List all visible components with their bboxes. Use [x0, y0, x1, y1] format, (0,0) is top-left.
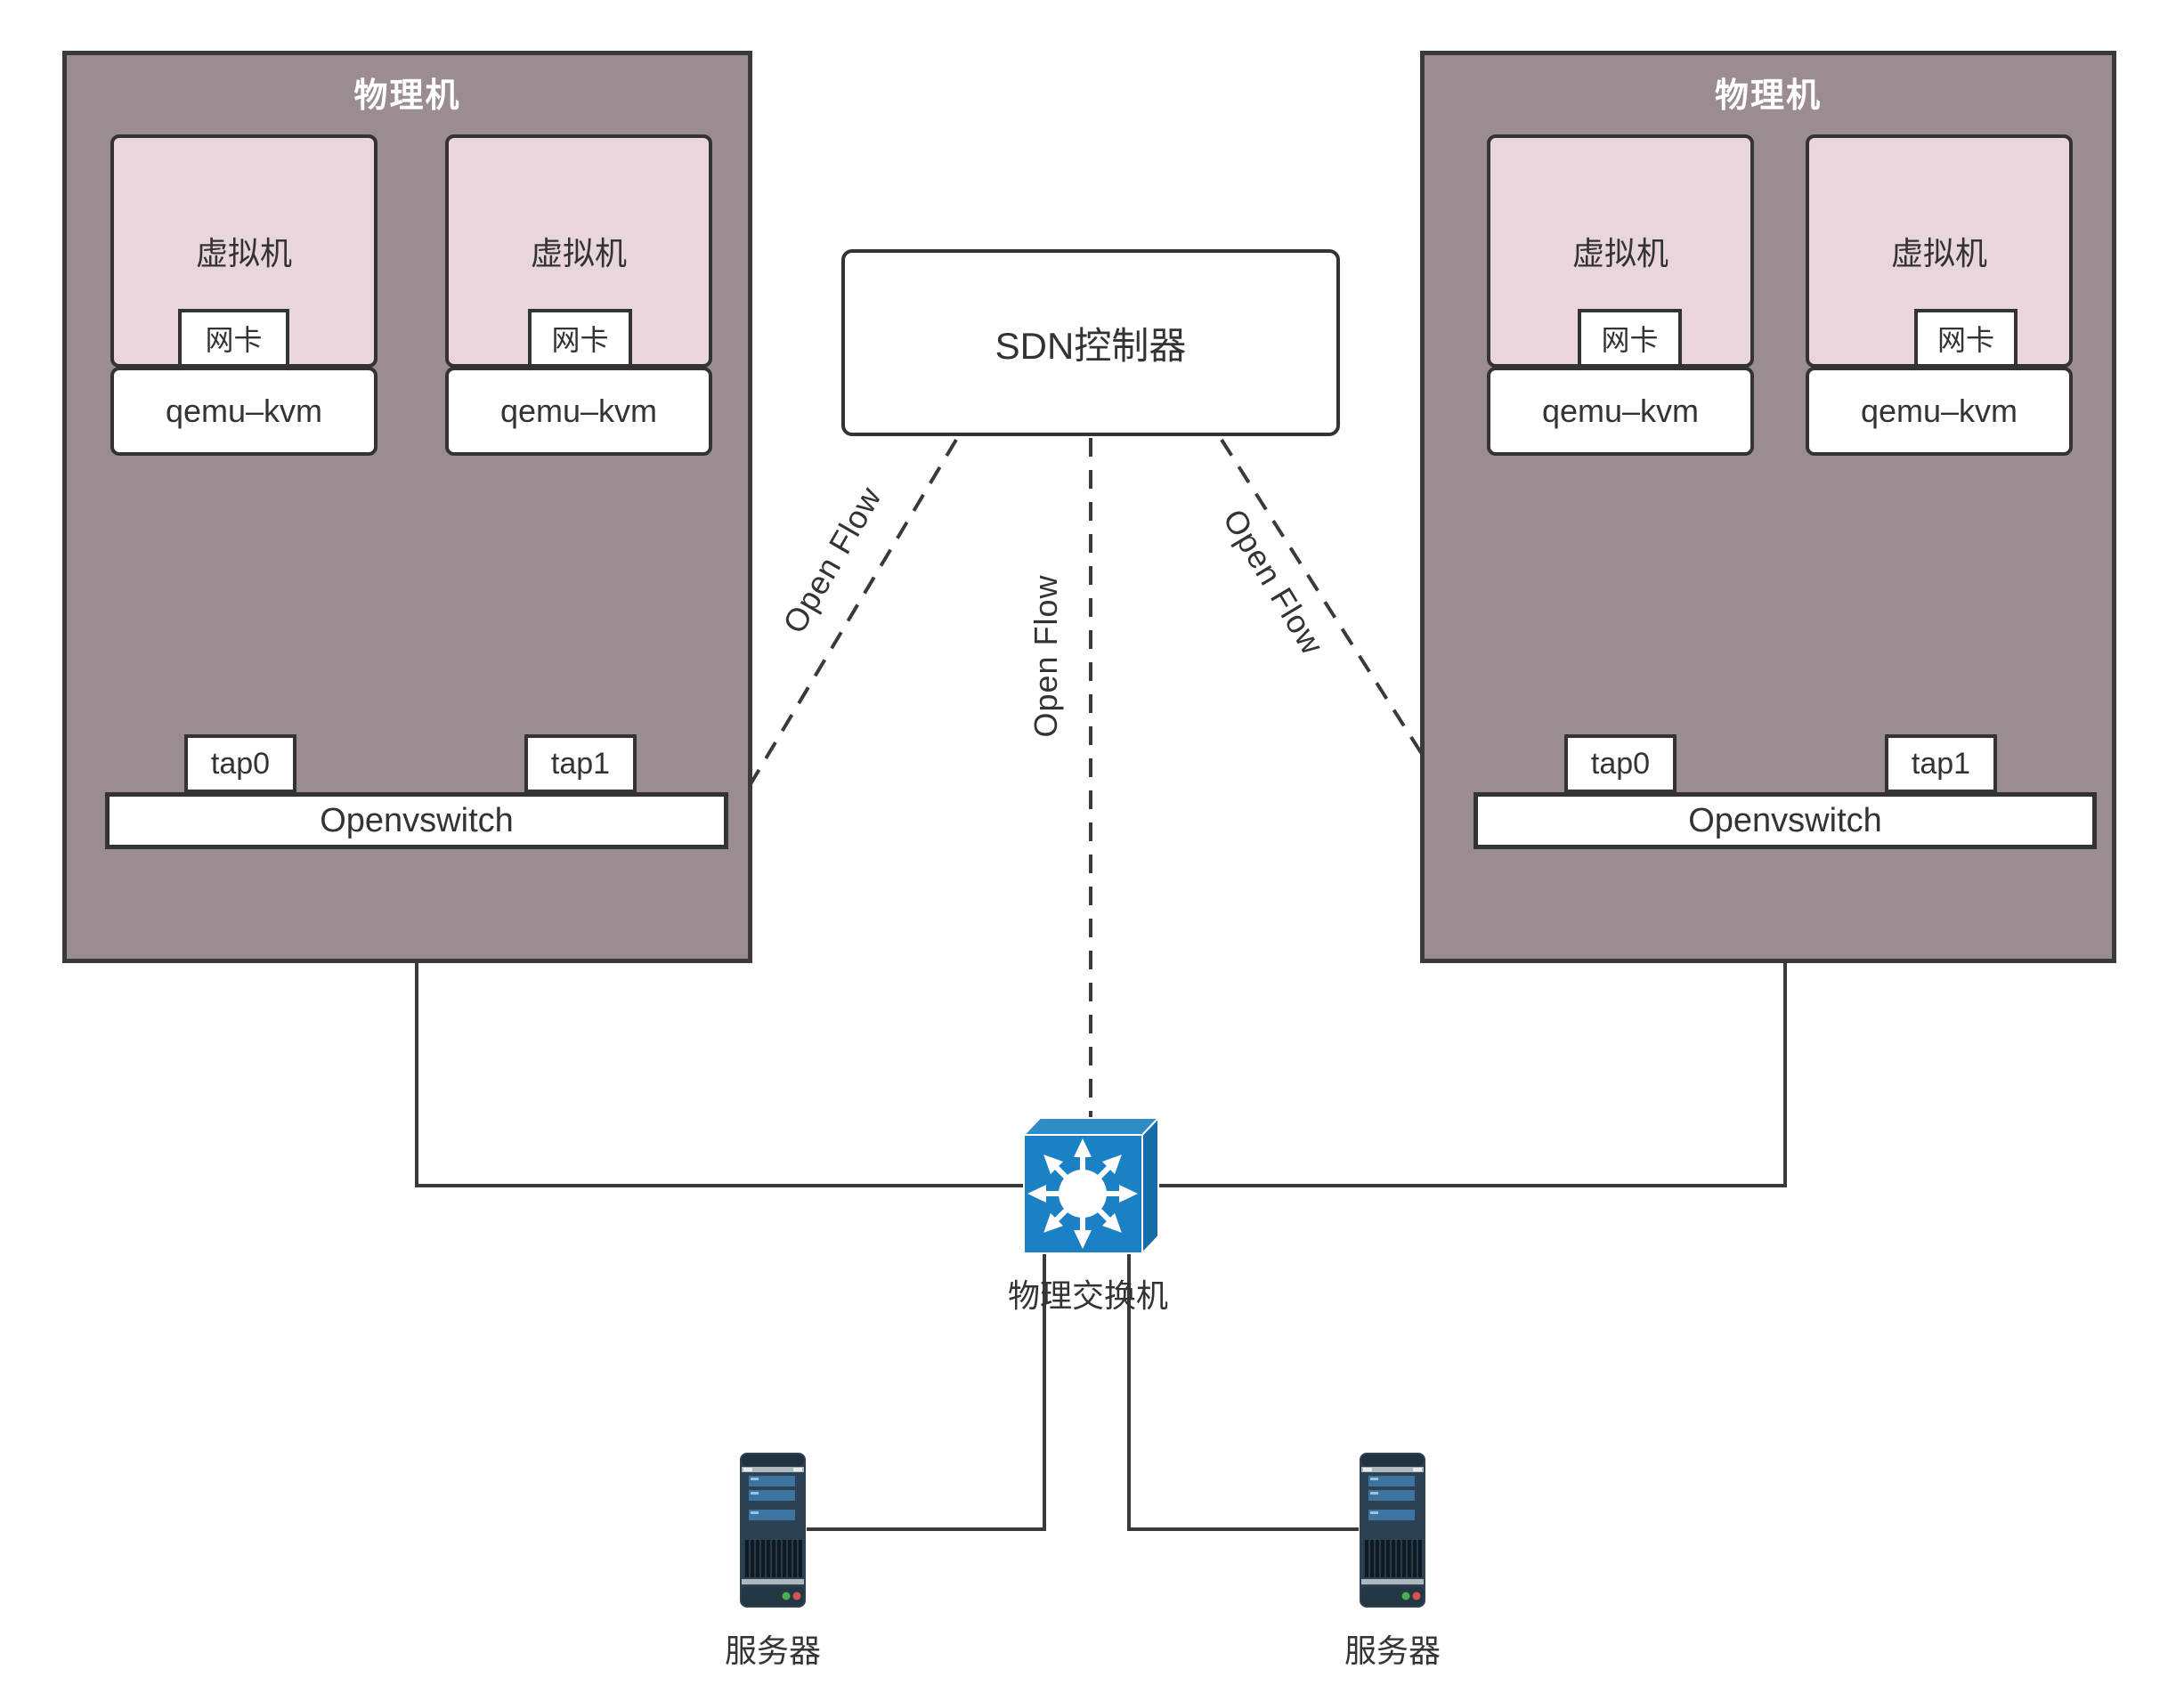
server-icon-left: [740, 1453, 806, 1608]
vm-right-1-label: 虚拟机: [1572, 228, 1668, 274]
hypervisor-left-1: qemu–kvm: [110, 367, 378, 456]
nic-right-1-label: 网卡: [1601, 318, 1658, 359]
nic-left-1: 网卡: [178, 309, 289, 368]
nic-right-1: 网卡: [1578, 309, 1682, 368]
openvswitch-right: Openvswitch: [1474, 792, 2097, 849]
sdn-architecture-diagram: 物理机 虚拟机 虚拟机 网卡 网卡 qemu–kvm qemu–kvm tap0…: [0, 0, 2184, 1685]
host-title-left: 物理机: [67, 68, 748, 117]
nic-right-2: 网卡: [1914, 309, 2018, 368]
openflow-label-center: Open Flow: [1027, 540, 1065, 772]
openvswitch-left: Openvswitch: [105, 792, 728, 849]
hypervisor-right-1-label: qemu–kvm: [1542, 393, 1699, 430]
nic-right-2-label: 网卡: [1937, 318, 1994, 359]
physical-switch-label: 物理交换机: [954, 1270, 1222, 1316]
nic-left-1-label: 网卡: [205, 318, 262, 359]
tap0-left-label: tap0: [211, 747, 270, 782]
tap1-left-label: tap1: [551, 747, 610, 782]
nic-left-2-label: 网卡: [551, 318, 608, 359]
server-icon-right: [1360, 1453, 1425, 1608]
hypervisor-left-2-label: qemu–kvm: [500, 393, 657, 430]
tap0-left: tap0: [184, 734, 296, 793]
hypervisor-left-2: qemu–kvm: [445, 367, 712, 456]
vm-right-2-label: 虚拟机: [1891, 228, 1987, 274]
physical-switch-icon: [1024, 1118, 1158, 1253]
vm-left-1-label: 虚拟机: [196, 228, 292, 274]
host-title-right: 物理机: [1425, 68, 2112, 117]
tap1-left: tap1: [524, 734, 637, 793]
nic-left-2: 网卡: [528, 309, 632, 368]
sdn-controller-box: SDN控制器: [841, 249, 1340, 436]
tap0-right-label: tap0: [1591, 747, 1650, 782]
hypervisor-left-1-label: qemu–kvm: [166, 393, 322, 430]
tap1-right: tap1: [1885, 734, 1997, 793]
openvswitch-right-label: Openvswitch: [1688, 802, 1882, 840]
hypervisor-right-1: qemu–kvm: [1487, 367, 1754, 456]
server-label-right: 服务器: [1303, 1625, 1482, 1672]
tap0-right: tap0: [1564, 734, 1677, 793]
openvswitch-left-label: Openvswitch: [320, 802, 514, 840]
vm-left-2-label: 虚拟机: [531, 228, 627, 274]
server-label-left: 服务器: [684, 1625, 862, 1672]
hypervisor-right-2: qemu–kvm: [1806, 367, 2073, 456]
hypervisor-right-2-label: qemu–kvm: [1861, 393, 2018, 430]
openflow-link-left: [732, 440, 956, 815]
tap1-right-label: tap1: [1912, 747, 1970, 782]
sdn-controller-label: SDN控制器: [995, 316, 1187, 370]
